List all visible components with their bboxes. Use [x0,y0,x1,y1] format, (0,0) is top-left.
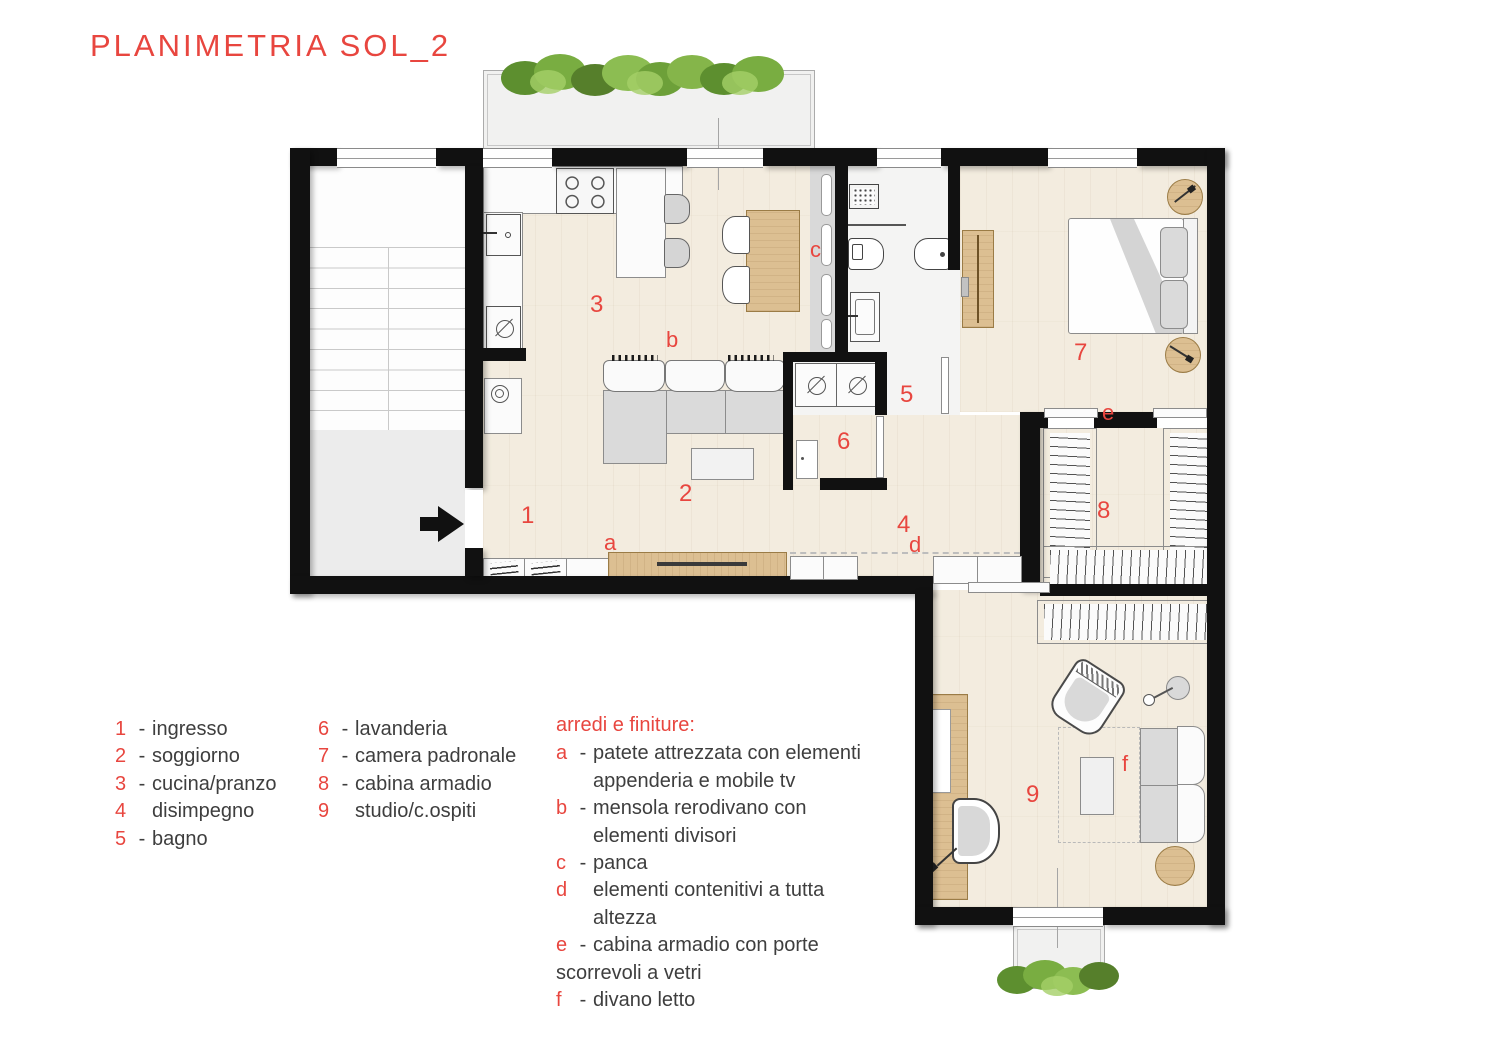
wall-top-5 [941,148,1048,166]
wall-stair-kitchen-low [465,548,483,576]
wall-wing-left [915,590,933,925]
hedge-plants-top [500,46,790,106]
legend-row: 2-soggiorno [115,743,315,770]
wall-top-2 [436,148,483,166]
entry-arrow-head-icon [438,506,464,542]
entry-door-opening [465,490,483,548]
room-label-3: 3 [590,291,604,319]
stool-1 [664,194,690,224]
bath-door-leaf [941,357,949,414]
sofa-bed-back-1 [1177,726,1205,785]
legend-row: 6-lavanderia [318,716,538,743]
bidet-icon [914,238,950,270]
page-title: PLANIMETRIA SOL_2 [90,28,451,64]
boiler-icon [491,385,509,403]
sofa-bed-back-2 [1177,784,1205,843]
wall-closet-bottom [1040,584,1207,596]
sofa-seat-2 [725,390,785,434]
tv-icon [657,562,747,566]
drain-icon [505,232,511,238]
window-bathroom [877,148,941,168]
stove-icon [556,168,614,214]
wall-top-3 [552,148,687,166]
legend-row: 1-ingresso [115,716,315,743]
sofa-back-cushion-1 [603,360,665,392]
pillow-2 [1160,280,1188,329]
laundry-side-door-leaf [876,416,884,478]
legend-furnishings: arredi e finiture: a-patete attrezzata c… [556,712,886,1014]
storage-d-3 [933,556,979,584]
dining-chair-1 [722,216,750,254]
wall-wing-bottom-2 [1103,907,1225,925]
legend-row-cont: elementi divisori [593,823,886,850]
laundry-door-leaf [796,440,818,479]
feature-label-c: c [810,237,822,263]
cabinet-handle [961,277,969,297]
wall-right [1207,148,1225,925]
dryer-icon [836,363,877,407]
window-stairwell [337,148,436,168]
wall-kitchen-stub [466,348,526,361]
sofa-seat-1 [665,390,727,434]
sliding-door-e-1 [1044,408,1098,418]
nightstand-1 [1167,179,1203,215]
dishwasher-icon [486,306,521,350]
legend-row: a-patete attrezzata con elementi [556,740,886,767]
hedge-plants-bottom [995,948,1120,1010]
legend-row: 3-cucina/pranzo [115,771,315,798]
feature-label-e: e [1102,400,1115,426]
wall-laundry-right [875,362,887,415]
washing-machine-icon [795,363,837,407]
legend-row: delementi contenitivi a tutta [556,877,886,904]
tv-unit [608,552,787,578]
studio-wardrobe-strip [1037,600,1217,644]
legend-row: e-cabina armadio con porte [556,932,886,959]
legend-row-cont: appenderia e mobile tv [593,768,886,795]
shower-head-icon [849,184,879,209]
legend-row: 7-camera padronale [318,743,538,770]
kitchen-peninsula [616,168,666,278]
entry-wardrobe-2 [524,558,567,578]
storage-d-4 [977,556,1022,584]
legend-row-cont: scorrevoli a vetri [556,960,886,987]
sofa-back-cushion-2 [665,360,725,392]
bench-cushion-2 [821,224,832,266]
desk-chair [952,798,1000,864]
feature-label-b: b [666,327,679,353]
shower-partition [848,224,906,226]
feature-label-d: d [909,532,922,558]
room-label-1: 1 [521,502,535,530]
wall-laundry-bottom [820,478,887,490]
floor-lamp-base [1143,694,1155,706]
legend-row: f-divano letto [556,987,886,1014]
terrace-door-studio [1013,907,1103,927]
legend-row: b-mensola rerodivano con [556,795,886,822]
shelf-divider-b-2 [728,355,774,361]
bathroom-antechamber-floor [887,356,960,420]
bath-sink-icon [850,292,880,342]
dining-table [746,210,800,312]
wall-wing-bottom-1 [915,907,1013,925]
sofa-bed-seat-1 [1140,728,1180,786]
wall-bath-right [948,166,960,270]
legend-rooms-col-1: 1-ingresso 2-soggiorno 3-cucina/pranzo 4… [115,716,315,853]
kitchen-low-cabinet [484,378,522,434]
legend-row: 4disimpegno [115,798,315,825]
feature-label-f: f [1122,751,1129,777]
room-label-8: 8 [1097,497,1111,525]
staircase-steps [310,247,465,430]
room-label-6: 6 [837,428,851,456]
legend-row: 9studio/c.ospiti [318,798,538,825]
pillow-1 [1160,227,1188,278]
wall-laundry-top [783,352,887,362]
pouf [1155,846,1195,886]
kitchen-sink-icon [486,214,521,256]
sofa-bed-seat-2 [1140,785,1180,843]
entry-wardrobe-1 [483,558,525,578]
room-label-2: 2 [679,480,693,508]
storage-d-1 [790,556,825,580]
sofa-chaise [603,390,667,464]
room-label-5: 5 [900,381,914,409]
legend-row: 5-bagno [115,826,315,853]
floor-plan-page: { "title": "PLANIMETRIA SOL_2", "colors"… [0,0,1500,1060]
sliding-door-e-2 [1153,408,1207,418]
sliding-door-studio [968,582,1050,593]
feature-label-a: a [604,530,617,556]
terrace-door [687,148,763,168]
room-label-9: 9 [1026,781,1040,809]
furnishings-title: arredi e finiture: [556,712,886,739]
wall-left [290,148,310,594]
sofa-back-cushion-3 [725,360,785,392]
wall-laundry-left [783,355,793,490]
legend-row: 8-cabina armadio [318,771,538,798]
dining-chair-2 [722,266,750,304]
bathroom-door-recess [948,270,960,360]
entry-arrow-icon [420,517,438,531]
wall-top-4 [763,148,877,166]
bench-cushion-3 [821,274,832,316]
wall-closet-left [1020,412,1040,590]
legend-row: c-panca [556,850,886,877]
legend-rooms-col-2: 6-lavanderia 7-camera padronale 8-cabina… [318,716,538,826]
window-kitchen [483,148,552,168]
bench-cushion-1 [821,174,832,216]
bench-cushion-4 [821,319,832,349]
legend-row-cont: altezza [593,905,886,932]
window-bedroom [1048,148,1137,168]
faucet-icon [483,232,497,234]
wall-stair-kitchen [465,166,483,488]
side-table [1080,757,1114,815]
coffee-table [691,448,754,480]
wall-bath-left [835,166,848,352]
storage-d-2 [823,556,858,580]
stool-2 [664,238,690,268]
room-label-7: 7 [1074,339,1088,367]
hall-tall-cabinet [962,230,994,328]
toilet-icon [848,238,884,270]
shelf-divider-b-1 [612,355,658,361]
entry-wardrobe-3 [566,558,610,578]
stair-landing [310,430,465,576]
